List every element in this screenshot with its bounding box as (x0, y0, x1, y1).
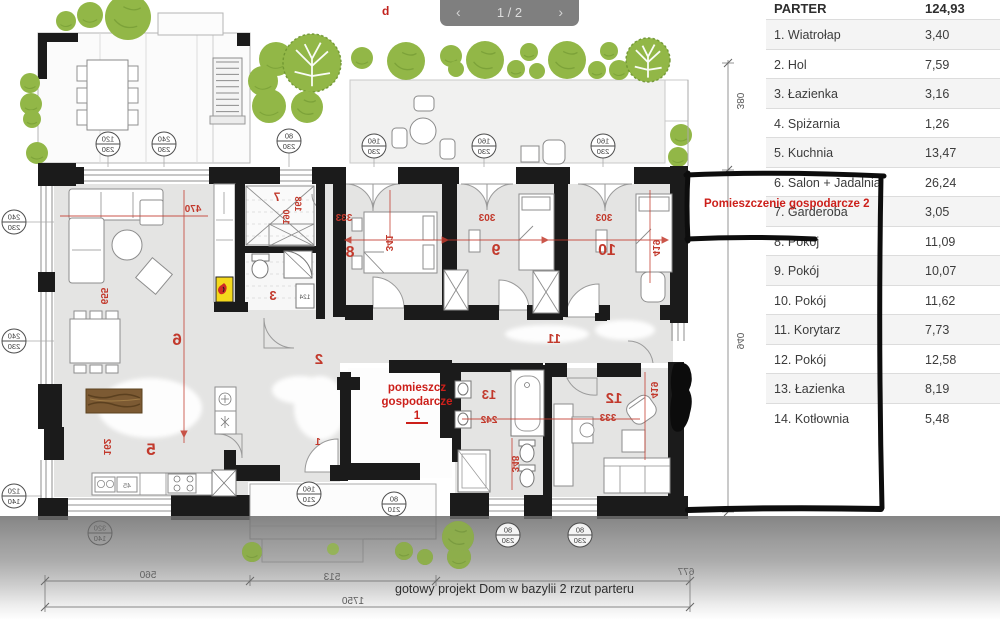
svg-text:80: 80 (576, 526, 584, 535)
svg-text:80: 80 (504, 526, 512, 535)
svg-text:230: 230 (574, 536, 587, 545)
svg-text:230: 230 (502, 536, 515, 545)
